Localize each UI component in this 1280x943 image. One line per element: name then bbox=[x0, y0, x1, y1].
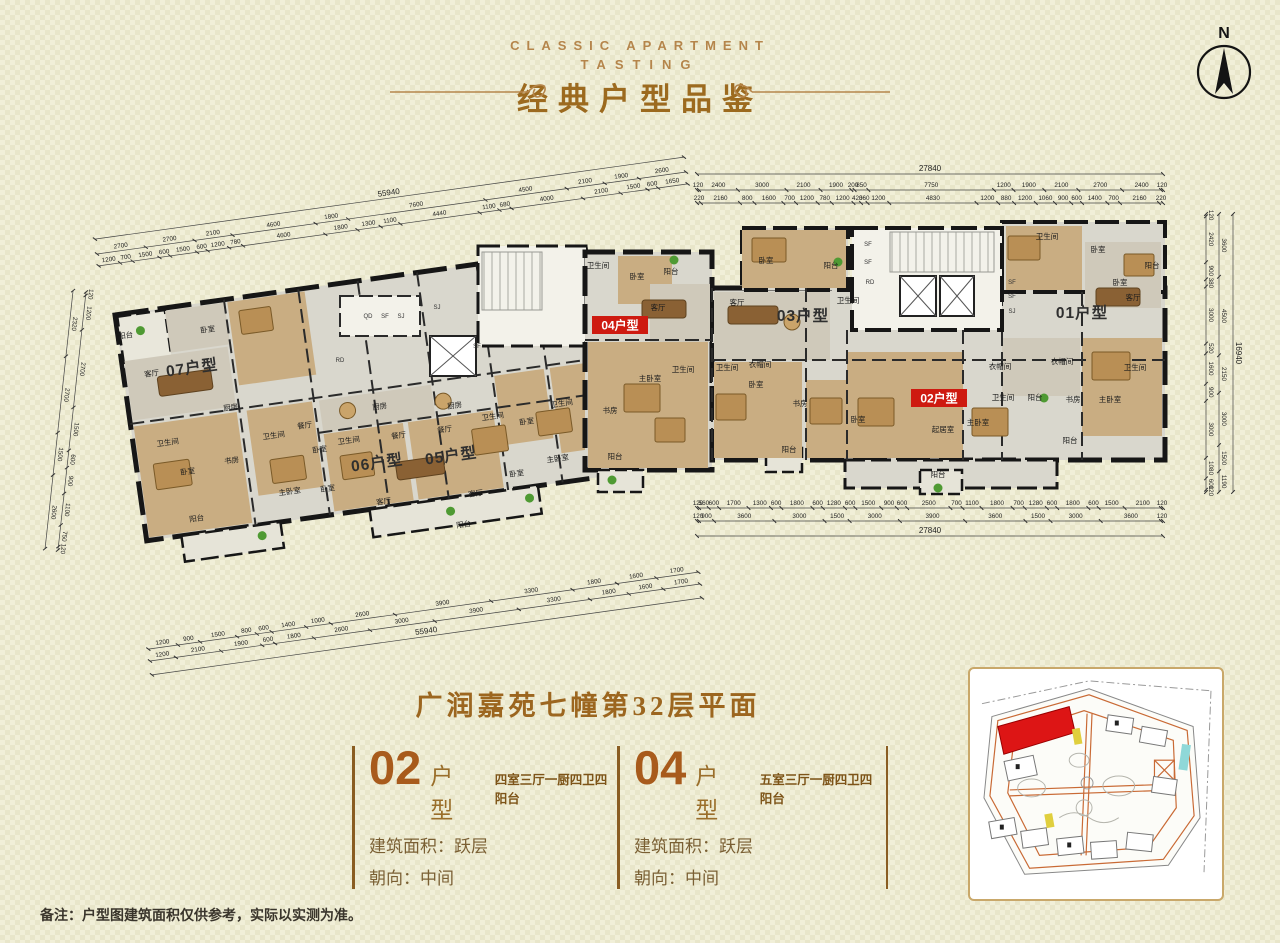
dimension-value: 3000 bbox=[792, 513, 807, 520]
dimension-value: 1500 bbox=[1105, 500, 1120, 507]
room-label: 卫生间 bbox=[716, 362, 739, 372]
dimension-value: 700 bbox=[951, 500, 962, 507]
core-label: SF bbox=[1008, 280, 1016, 286]
dimension-value: 120 bbox=[1157, 500, 1168, 507]
dimension-value: 1100 bbox=[383, 216, 398, 225]
dimension-value: 1500 bbox=[176, 245, 191, 254]
dimension-value: 900 bbox=[1058, 195, 1069, 202]
dimension-value: 16940 bbox=[1234, 342, 1243, 365]
dimension-value: 1800 bbox=[333, 223, 348, 232]
dimension-value: 360 bbox=[859, 195, 870, 202]
dimension-value: 2100 bbox=[1136, 500, 1151, 507]
room-label: 书房 bbox=[603, 405, 618, 415]
dimension-value: 880 bbox=[1001, 195, 1012, 202]
dimension-value: 1200 bbox=[1018, 195, 1033, 202]
dimension-value: 4500 bbox=[518, 185, 533, 194]
core-label: QD bbox=[364, 314, 374, 320]
unit-facing: 朝向：中间 bbox=[369, 864, 609, 889]
dimension-value: 1600 bbox=[762, 195, 777, 202]
site-plan-thumbnail bbox=[968, 667, 1224, 901]
dimension-value: 600 bbox=[845, 500, 856, 507]
core-label: SJ bbox=[433, 305, 440, 311]
dimension-value: 1200 bbox=[836, 195, 851, 202]
dim-right-bottom: 1205606001700130060018006001280600150090… bbox=[693, 500, 1168, 538]
dimension-value: 3000 bbox=[394, 617, 409, 626]
dimension-value: 2100 bbox=[1054, 182, 1069, 189]
dimension-value: 850 bbox=[856, 182, 867, 189]
dimension-value: 2100 bbox=[578, 177, 593, 186]
dimension-value: 1600 bbox=[638, 583, 653, 592]
unit-type-label: 户 型 bbox=[695, 757, 750, 825]
dimension-value: 900 bbox=[701, 513, 712, 520]
dimension-value: 3600 bbox=[737, 513, 752, 520]
dimension-value: 2600 bbox=[49, 505, 58, 520]
dimension-value: 2700 bbox=[113, 242, 128, 251]
room-label: 卧室 bbox=[759, 255, 774, 265]
dimension-value: 1900 bbox=[1022, 182, 1037, 189]
elevator-shafts bbox=[900, 276, 974, 316]
room-label: 阳台 bbox=[1028, 392, 1043, 402]
dimension-value: 1800 bbox=[601, 588, 616, 597]
dimension-value: 1500 bbox=[1220, 451, 1227, 466]
dimension-value: 120 bbox=[1157, 182, 1168, 189]
dimension-value: 900 bbox=[1207, 266, 1214, 277]
dimension-value: 1200 bbox=[101, 255, 116, 264]
dimension-value: 1080 bbox=[1207, 461, 1214, 476]
svg-text:03户型: 03户型 bbox=[777, 306, 829, 325]
dimension-value: 7750 bbox=[924, 182, 939, 189]
dimension-value: 2400 bbox=[711, 182, 726, 189]
dimension-value: 1500 bbox=[626, 182, 641, 191]
dimension-value: 780 bbox=[819, 195, 830, 202]
unit-number: 04 bbox=[634, 746, 686, 791]
dimension-value: 1900 bbox=[234, 639, 249, 648]
dimension-value: 3000 bbox=[1207, 308, 1214, 323]
dimension-value: 3900 bbox=[469, 606, 484, 615]
room-label: 书房 bbox=[1066, 394, 1081, 404]
dimension-value: 380 bbox=[1207, 278, 1214, 289]
dimension-value: 220 bbox=[694, 195, 705, 202]
dimension-value: 27840 bbox=[919, 526, 942, 535]
dimension-value: 2600 bbox=[654, 166, 669, 175]
dimension-value: 600 bbox=[771, 500, 782, 507]
dimension-value: 600 bbox=[646, 180, 658, 188]
dimension-value: 1200 bbox=[871, 195, 886, 202]
dimension-value: 3300 bbox=[546, 595, 561, 604]
dimension-value: 4500 bbox=[1220, 309, 1227, 324]
dimension-value: 1500 bbox=[830, 513, 845, 520]
dimension-value: 600 bbox=[1047, 500, 1058, 507]
dimension-value: 1500 bbox=[1031, 513, 1046, 520]
dimension-value: 120 bbox=[693, 182, 704, 189]
core-label: SF bbox=[1008, 294, 1016, 300]
dimension-value: 2160 bbox=[1133, 195, 1148, 202]
dimension-value: 4440 bbox=[432, 209, 447, 218]
core-label: SJ bbox=[1008, 309, 1015, 315]
dimension-value: 120 bbox=[1207, 210, 1214, 221]
dimension-value: 3000 bbox=[868, 513, 883, 520]
dimension-value: 4830 bbox=[926, 195, 941, 202]
dimension-value: 2600 bbox=[334, 625, 349, 634]
dimension-value: 1700 bbox=[669, 566, 684, 575]
dimension-value: 1200 bbox=[800, 195, 815, 202]
dimension-value: 2700 bbox=[78, 362, 87, 377]
room-label: 衣帽间 bbox=[1051, 356, 1074, 366]
dimension-value: 1800 bbox=[286, 632, 301, 641]
svg-text:02户型: 02户型 bbox=[920, 391, 957, 406]
dimension-value: 220 bbox=[1156, 195, 1167, 202]
dimension-value: 1200 bbox=[84, 306, 93, 321]
room-label: 主卧室 bbox=[1099, 394, 1122, 404]
dimension-value: 3600 bbox=[988, 513, 1003, 520]
dimension-value: 2150 bbox=[1220, 367, 1227, 382]
room-label: 卫生间 bbox=[992, 392, 1015, 402]
unit-label-01: 01户型 bbox=[1056, 303, 1108, 322]
dimension-value: 1600 bbox=[629, 572, 644, 581]
dimension-value: 2100 bbox=[190, 645, 205, 654]
dim-right-top: 2784012024003000210019002008507750120019… bbox=[693, 164, 1168, 205]
dimension-value: 3000 bbox=[1069, 513, 1084, 520]
unit-rooms-desc: 四室三厅一厨四卫四阳台 bbox=[495, 769, 609, 807]
room-label: 卧室 bbox=[630, 271, 645, 281]
dimension-value: 1300 bbox=[753, 500, 768, 507]
dimension-value: 600 bbox=[196, 243, 208, 251]
room-label: 主卧室 bbox=[967, 417, 990, 427]
room-label: 厨房 bbox=[371, 400, 387, 412]
dimension-value: 2100 bbox=[797, 182, 812, 189]
dimension-value: 2320 bbox=[70, 317, 79, 332]
dimension-value: 800 bbox=[241, 627, 253, 635]
right-wing bbox=[585, 222, 1165, 494]
dimension-value: 1200 bbox=[155, 650, 170, 659]
dimension-value: 780 bbox=[230, 238, 242, 246]
room-label: 厨房 bbox=[222, 401, 238, 413]
room-label: 卧室 bbox=[1113, 277, 1129, 287]
dim-left-side: 1201200270015006009001100750120232027001… bbox=[43, 289, 94, 555]
dimension-value: 2100 bbox=[594, 187, 609, 196]
dimension-value: 1280 bbox=[827, 500, 842, 507]
room-label: 阳台 bbox=[608, 451, 623, 461]
dimension-value: 700 bbox=[784, 195, 795, 202]
unit-rooms-desc: 五室三厅一厨四卫四阳台 bbox=[760, 769, 874, 807]
dimension-value: 1190 bbox=[1220, 475, 1227, 489]
dimension-value: 7600 bbox=[409, 201, 424, 210]
room-label: 阳台 bbox=[455, 518, 471, 530]
dim-right-side: 1202420900380300052016009003000108060012… bbox=[1204, 210, 1243, 497]
dimension-value: 2160 bbox=[713, 195, 728, 202]
svg-text:01户型: 01户型 bbox=[1056, 303, 1108, 322]
dimension-value: 900 bbox=[183, 635, 195, 643]
svg-text:04户型: 04户型 bbox=[601, 318, 638, 333]
dimension-value: 1200 bbox=[155, 638, 170, 647]
dimension-value: 600 bbox=[709, 500, 720, 507]
dimension-value: 900 bbox=[66, 475, 74, 487]
dimension-value: 2100 bbox=[205, 229, 220, 238]
room-label: 卧室 bbox=[851, 414, 866, 424]
dimension-value: 3600 bbox=[1220, 238, 1227, 253]
room-label: 阳台 bbox=[931, 469, 946, 479]
dimension-value: 600 bbox=[897, 500, 908, 507]
core-label: SF bbox=[864, 242, 872, 248]
room-label: 厨房 bbox=[446, 399, 462, 411]
dimension-value: 700 bbox=[120, 253, 132, 261]
dimension-value: 520 bbox=[1207, 343, 1214, 354]
dimension-value: 3600 bbox=[1124, 513, 1139, 520]
room-label: 卫生间 bbox=[837, 295, 860, 305]
unit-info-02: 02 户 型 四室三厅一厨四卫四阳台 建筑面积：跃层 朝向：中间 bbox=[352, 746, 609, 889]
dimension-value: 800 bbox=[742, 195, 753, 202]
core-label: SJ bbox=[397, 314, 404, 320]
dimension-value: 900 bbox=[1207, 387, 1214, 398]
dimension-value: 4600 bbox=[276, 231, 291, 240]
dimension-value: 1300 bbox=[361, 219, 376, 228]
dimension-value: 1600 bbox=[1207, 362, 1214, 377]
room-label: 衣帽间 bbox=[989, 361, 1012, 371]
dimension-value: 2700 bbox=[1093, 182, 1108, 189]
dimension-value: 3300 bbox=[524, 586, 539, 595]
dimension-value: 600 bbox=[1088, 500, 1099, 507]
dimension-value: 1100 bbox=[482, 203, 497, 212]
dimension-value: 3900 bbox=[926, 513, 941, 520]
dimension-value: 3900 bbox=[435, 599, 450, 608]
footnote: 备注：户型图建筑面积仅供参考，实际以实测为准。 bbox=[40, 905, 362, 925]
dimension-value: 120 bbox=[59, 543, 67, 555]
dimension-value: 600 bbox=[68, 454, 76, 466]
room-label: 卫生间 bbox=[672, 364, 695, 374]
room-label: 卫生间 bbox=[1036, 231, 1059, 241]
dimension-value: 2500 bbox=[922, 500, 937, 507]
dimension-value: 900 bbox=[884, 500, 895, 507]
dimension-value: 1060 bbox=[1038, 195, 1053, 202]
room-label: 阳台 bbox=[824, 260, 839, 270]
dimension-value: 1500 bbox=[71, 422, 80, 437]
dimension-value: 700 bbox=[1108, 195, 1119, 202]
dimension-value: 3000 bbox=[1207, 422, 1214, 437]
dimension-value: 600 bbox=[158, 248, 170, 256]
dimension-value: 4000 bbox=[539, 194, 554, 203]
dimension-value: 1900 bbox=[829, 182, 844, 189]
core-label: RD bbox=[336, 358, 345, 364]
room-label: 起居室 bbox=[932, 424, 955, 434]
dimension-value: 27840 bbox=[919, 164, 942, 173]
dimension-value: 3000 bbox=[1220, 412, 1227, 427]
dimension-value: 1500 bbox=[861, 500, 876, 507]
unit-facing: 朝向：中间 bbox=[634, 864, 874, 889]
dimension-value: 1280 bbox=[1029, 500, 1044, 507]
core-label: SF bbox=[381, 314, 389, 320]
unit-info-04: 04 户 型 五室三厅一厨四卫四阳台 建筑面积：跃层 朝向：中间 bbox=[617, 746, 888, 889]
dimension-value: 1200 bbox=[980, 195, 995, 202]
dimension-value: 1500 bbox=[138, 250, 153, 259]
dimension-value: 1000 bbox=[310, 616, 325, 625]
room-label: 阳台 bbox=[117, 329, 133, 341]
room-label: 主卧室 bbox=[639, 373, 662, 383]
room-label: 衣帽间 bbox=[749, 359, 772, 369]
room-label: 阳台 bbox=[1063, 435, 1078, 445]
dimension-value: 600 bbox=[812, 500, 823, 507]
dimension-value: 2420 bbox=[1207, 232, 1214, 247]
room-label: 客厅 bbox=[730, 297, 745, 307]
dimension-value: 120 bbox=[86, 289, 94, 301]
dimension-value: 120 bbox=[1157, 513, 1168, 520]
unit-area: 建筑面积：跃层 bbox=[634, 832, 874, 857]
room-label: 阳台 bbox=[664, 266, 679, 276]
dimension-value: 1500 bbox=[56, 447, 65, 462]
dimension-value: 680 bbox=[499, 201, 511, 209]
dimension-value: 600 bbox=[262, 636, 274, 644]
dimension-value: 1800 bbox=[324, 212, 339, 221]
dimension-value: 1650 bbox=[665, 177, 680, 186]
core-label: SF bbox=[864, 260, 872, 266]
dimension-value: 1100 bbox=[63, 503, 71, 518]
room-label: 卧室 bbox=[1091, 244, 1107, 254]
room-label: 卫生间 bbox=[1124, 362, 1147, 372]
room-label: 卧室 bbox=[749, 379, 764, 389]
room-label: 书房 bbox=[793, 398, 808, 408]
dimension-value: 1800 bbox=[990, 500, 1005, 507]
dimension-value: 1500 bbox=[211, 630, 226, 639]
dimension-value: 1200 bbox=[210, 240, 225, 249]
dimension-value: 1400 bbox=[281, 620, 296, 629]
dimension-value: 750 bbox=[60, 531, 68, 543]
unit-label-03: 03户型 bbox=[777, 306, 829, 325]
unit-label-04: 04户型 bbox=[592, 316, 648, 334]
dimension-value: 120 bbox=[1207, 486, 1214, 497]
core-label: RD bbox=[866, 280, 875, 286]
room-label: 客厅 bbox=[651, 302, 666, 312]
room-label: 阳台 bbox=[782, 444, 797, 454]
dimension-value: 1400 bbox=[1088, 195, 1103, 202]
dimension-value: 700 bbox=[1013, 500, 1024, 507]
dimension-value: 2400 bbox=[1135, 182, 1150, 189]
dimension-value: 600 bbox=[258, 624, 270, 632]
room-label: 客厅 bbox=[1126, 292, 1142, 302]
unit-type-label: 户 型 bbox=[430, 757, 485, 825]
dimension-value: 3000 bbox=[755, 182, 770, 189]
dim-left-bottom: 1200900150080060014001000260039003300180… bbox=[146, 566, 704, 676]
dimension-value: 1900 bbox=[614, 172, 629, 181]
room-label: 阳台 bbox=[188, 512, 204, 524]
dimension-value: 4600 bbox=[266, 220, 281, 229]
dimension-value: 600 bbox=[1071, 195, 1082, 202]
dimension-value: 1800 bbox=[587, 578, 602, 587]
unit-label-02: 02户型 bbox=[911, 389, 967, 407]
dimension-value: 1700 bbox=[727, 500, 742, 507]
core-label: SF bbox=[473, 344, 481, 350]
dimension-value: 1800 bbox=[1066, 500, 1081, 507]
room-label: 书房 bbox=[223, 454, 239, 466]
room-label: 卫生间 bbox=[587, 260, 610, 270]
dimension-value: 2600 bbox=[355, 610, 370, 619]
unit-number: 02 bbox=[369, 746, 421, 791]
room-label: 阳台 bbox=[1145, 260, 1160, 270]
dimension-value: 1800 bbox=[790, 500, 805, 507]
dimension-value: 2700 bbox=[62, 388, 71, 403]
dimension-value: 1200 bbox=[997, 182, 1012, 189]
dimension-value: 1100 bbox=[965, 500, 979, 507]
unit-area: 建筑面积：跃层 bbox=[369, 832, 609, 857]
dimension-value: 1700 bbox=[674, 578, 689, 587]
dimension-value: 2700 bbox=[162, 235, 177, 244]
